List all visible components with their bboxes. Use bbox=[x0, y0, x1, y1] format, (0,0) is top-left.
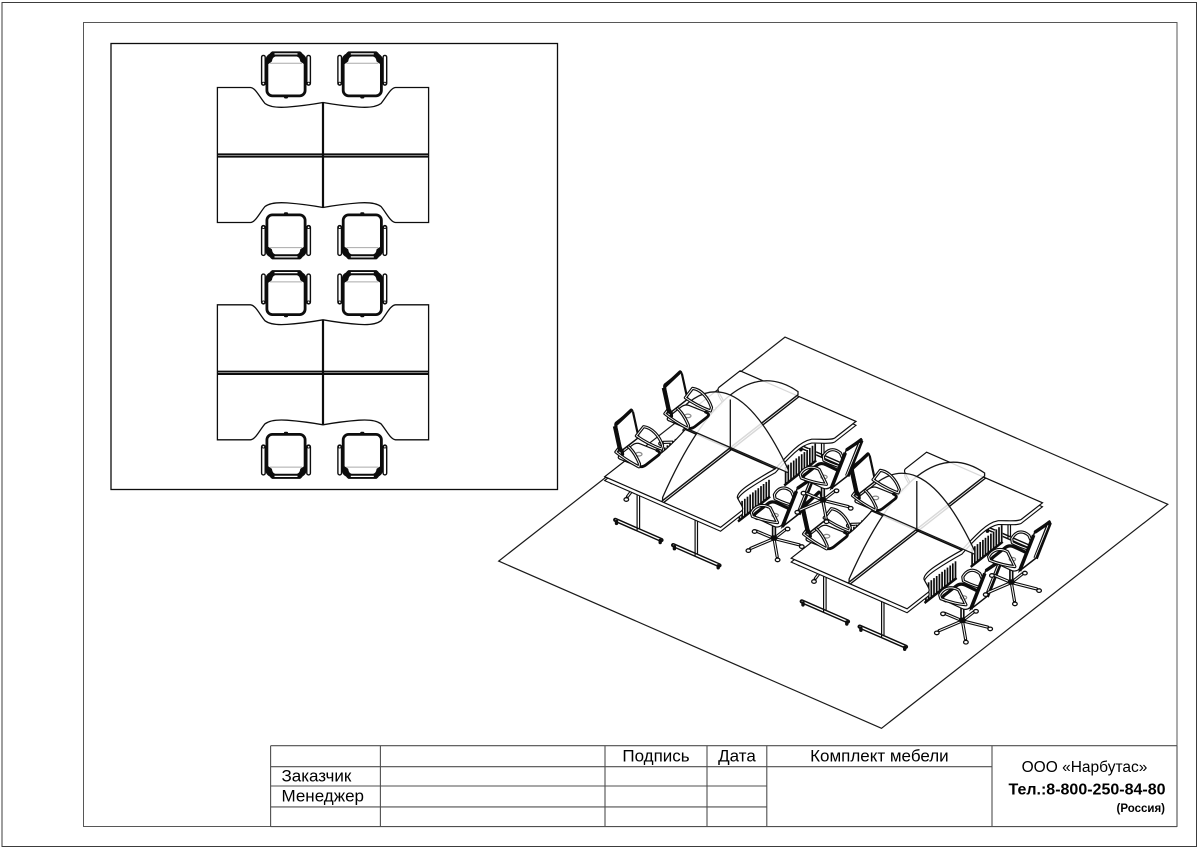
svg-text:Менеджер: Менеджер bbox=[282, 787, 364, 806]
svg-text:Комплект мебели: Комплект мебели bbox=[810, 747, 949, 766]
svg-text:Тел.:8-800-250-84-80: Тел.:8-800-250-84-80 bbox=[1008, 782, 1165, 799]
svg-text:ООО «Нарбутас»: ООО «Нарбутас» bbox=[1022, 759, 1148, 776]
svg-text:(Россия): (Россия) bbox=[1117, 803, 1166, 815]
svg-text:Дата: Дата bbox=[718, 747, 756, 766]
svg-text:Подпись: Подпись bbox=[622, 747, 689, 766]
svg-text:Заказчик: Заказчик bbox=[282, 767, 352, 786]
